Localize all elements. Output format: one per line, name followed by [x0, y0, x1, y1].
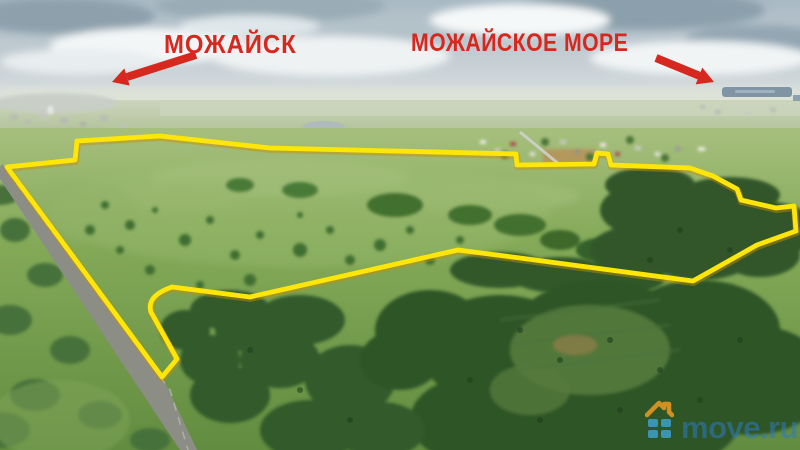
aerial-photo-canvas	[0, 0, 800, 450]
watermark: move.ru	[645, 400, 798, 443]
house-icon	[645, 400, 674, 440]
aerial-photo: МОЖАЙСК МОЖАЙСКОЕ МОРЕ move.ru	[0, 0, 800, 450]
sea-label: МОЖАЙСКОЕ МОРЕ	[411, 31, 628, 56]
city-label: МОЖАЙСК	[164, 31, 297, 57]
watermark-text: move.ru	[681, 412, 798, 443]
